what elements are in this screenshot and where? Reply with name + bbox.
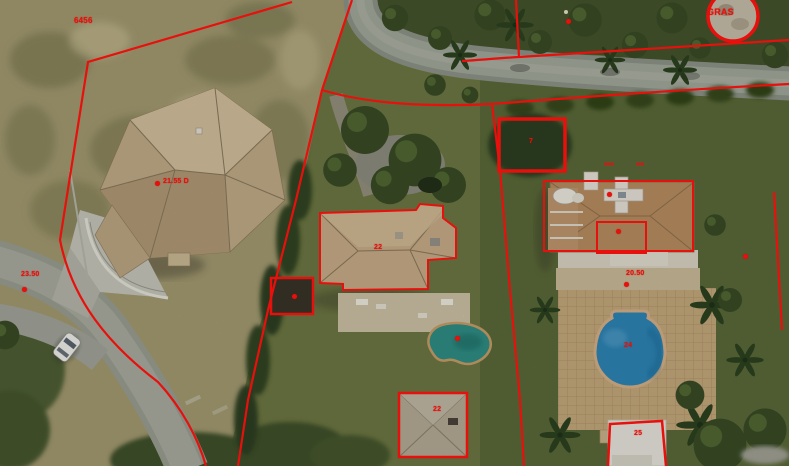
survey-label-elevation-road-left: 23.50 (21, 271, 40, 278)
survey-label-elevation-left-villa: 21.55 D (163, 178, 189, 185)
dot-small-square (292, 294, 297, 299)
photo-grain (0, 0, 789, 466)
dot-right-villa-inner (616, 229, 621, 234)
aerial-photo (0, 0, 789, 466)
survey-label-mark-outbuilding: 22 (433, 406, 441, 413)
survey-label-label-gras: GRAS (707, 8, 734, 17)
dot-road-left (22, 287, 27, 292)
survey-label-mark-center-villa: 22 (374, 244, 382, 251)
dot-right-villa (624, 282, 629, 287)
dot-top-boundary (566, 19, 571, 24)
aerial-cadastral-view: 645621.55 D23.5020.50GRAS222225724 (0, 0, 789, 466)
survey-label-mark-right-square: 7 (529, 138, 533, 145)
dot-center-pool (455, 336, 460, 341)
survey-label-mark-right-pool: 24 (624, 342, 632, 349)
dot-right-garden (743, 254, 748, 259)
survey-label-plot-number-topleft: 6456 (74, 17, 93, 25)
survey-label-elevation-right-villa: 20.50 (626, 270, 645, 277)
dot-left-villa (155, 181, 160, 186)
survey-label-mark-bottom-structure: 25 (634, 430, 642, 437)
dot-right-villa-roof (607, 192, 612, 197)
